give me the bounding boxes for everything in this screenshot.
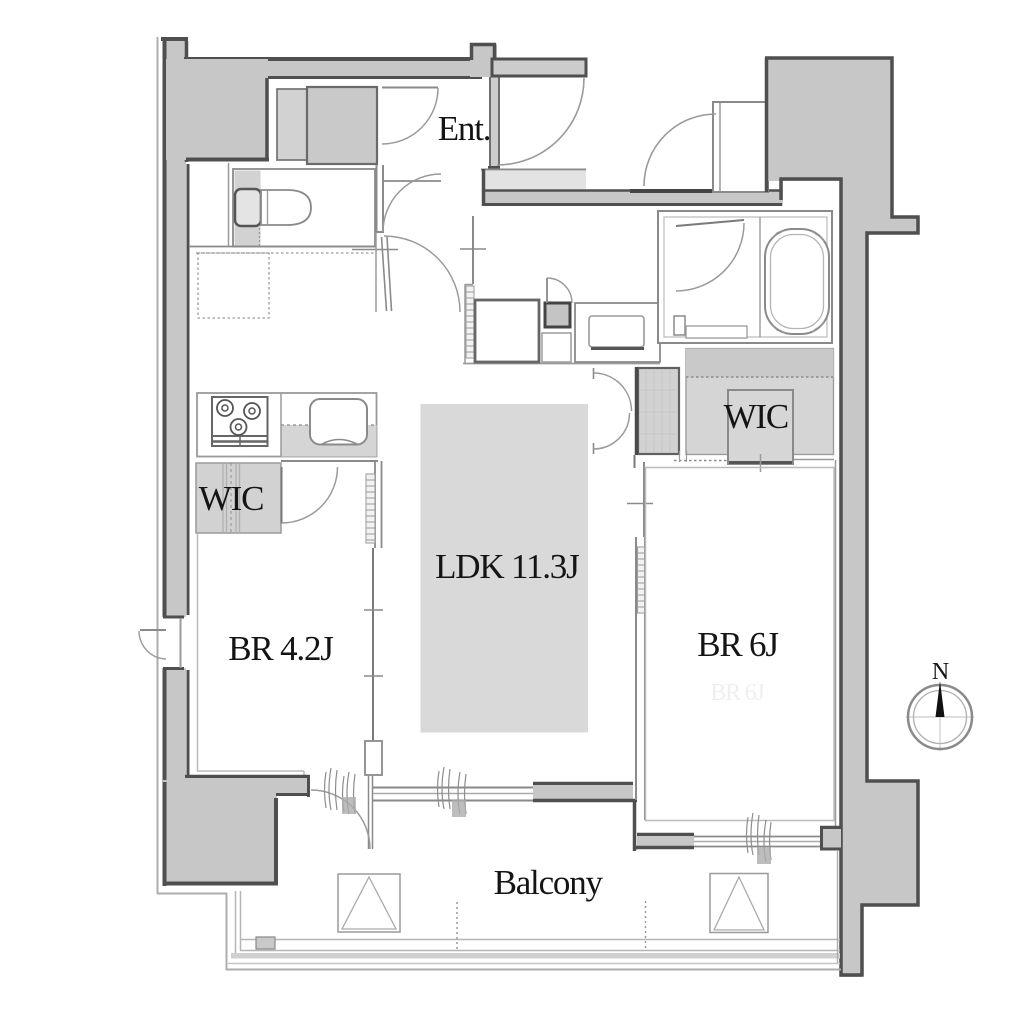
svg-text:WIC: WIC <box>724 397 788 436</box>
svg-text:Balcony: Balcony <box>494 863 604 902</box>
svg-text:WIC: WIC <box>199 479 263 518</box>
svg-text:Ent.: Ent. <box>438 109 491 148</box>
svg-text:N: N <box>932 659 949 685</box>
svg-text:BR 6J: BR 6J <box>697 625 778 664</box>
svg-text:BR 6J: BR 6J <box>710 680 764 706</box>
svg-text:LDK 11.3J: LDK 11.3J <box>435 547 579 586</box>
svg-text:BR 4.2J: BR 4.2J <box>228 629 333 668</box>
